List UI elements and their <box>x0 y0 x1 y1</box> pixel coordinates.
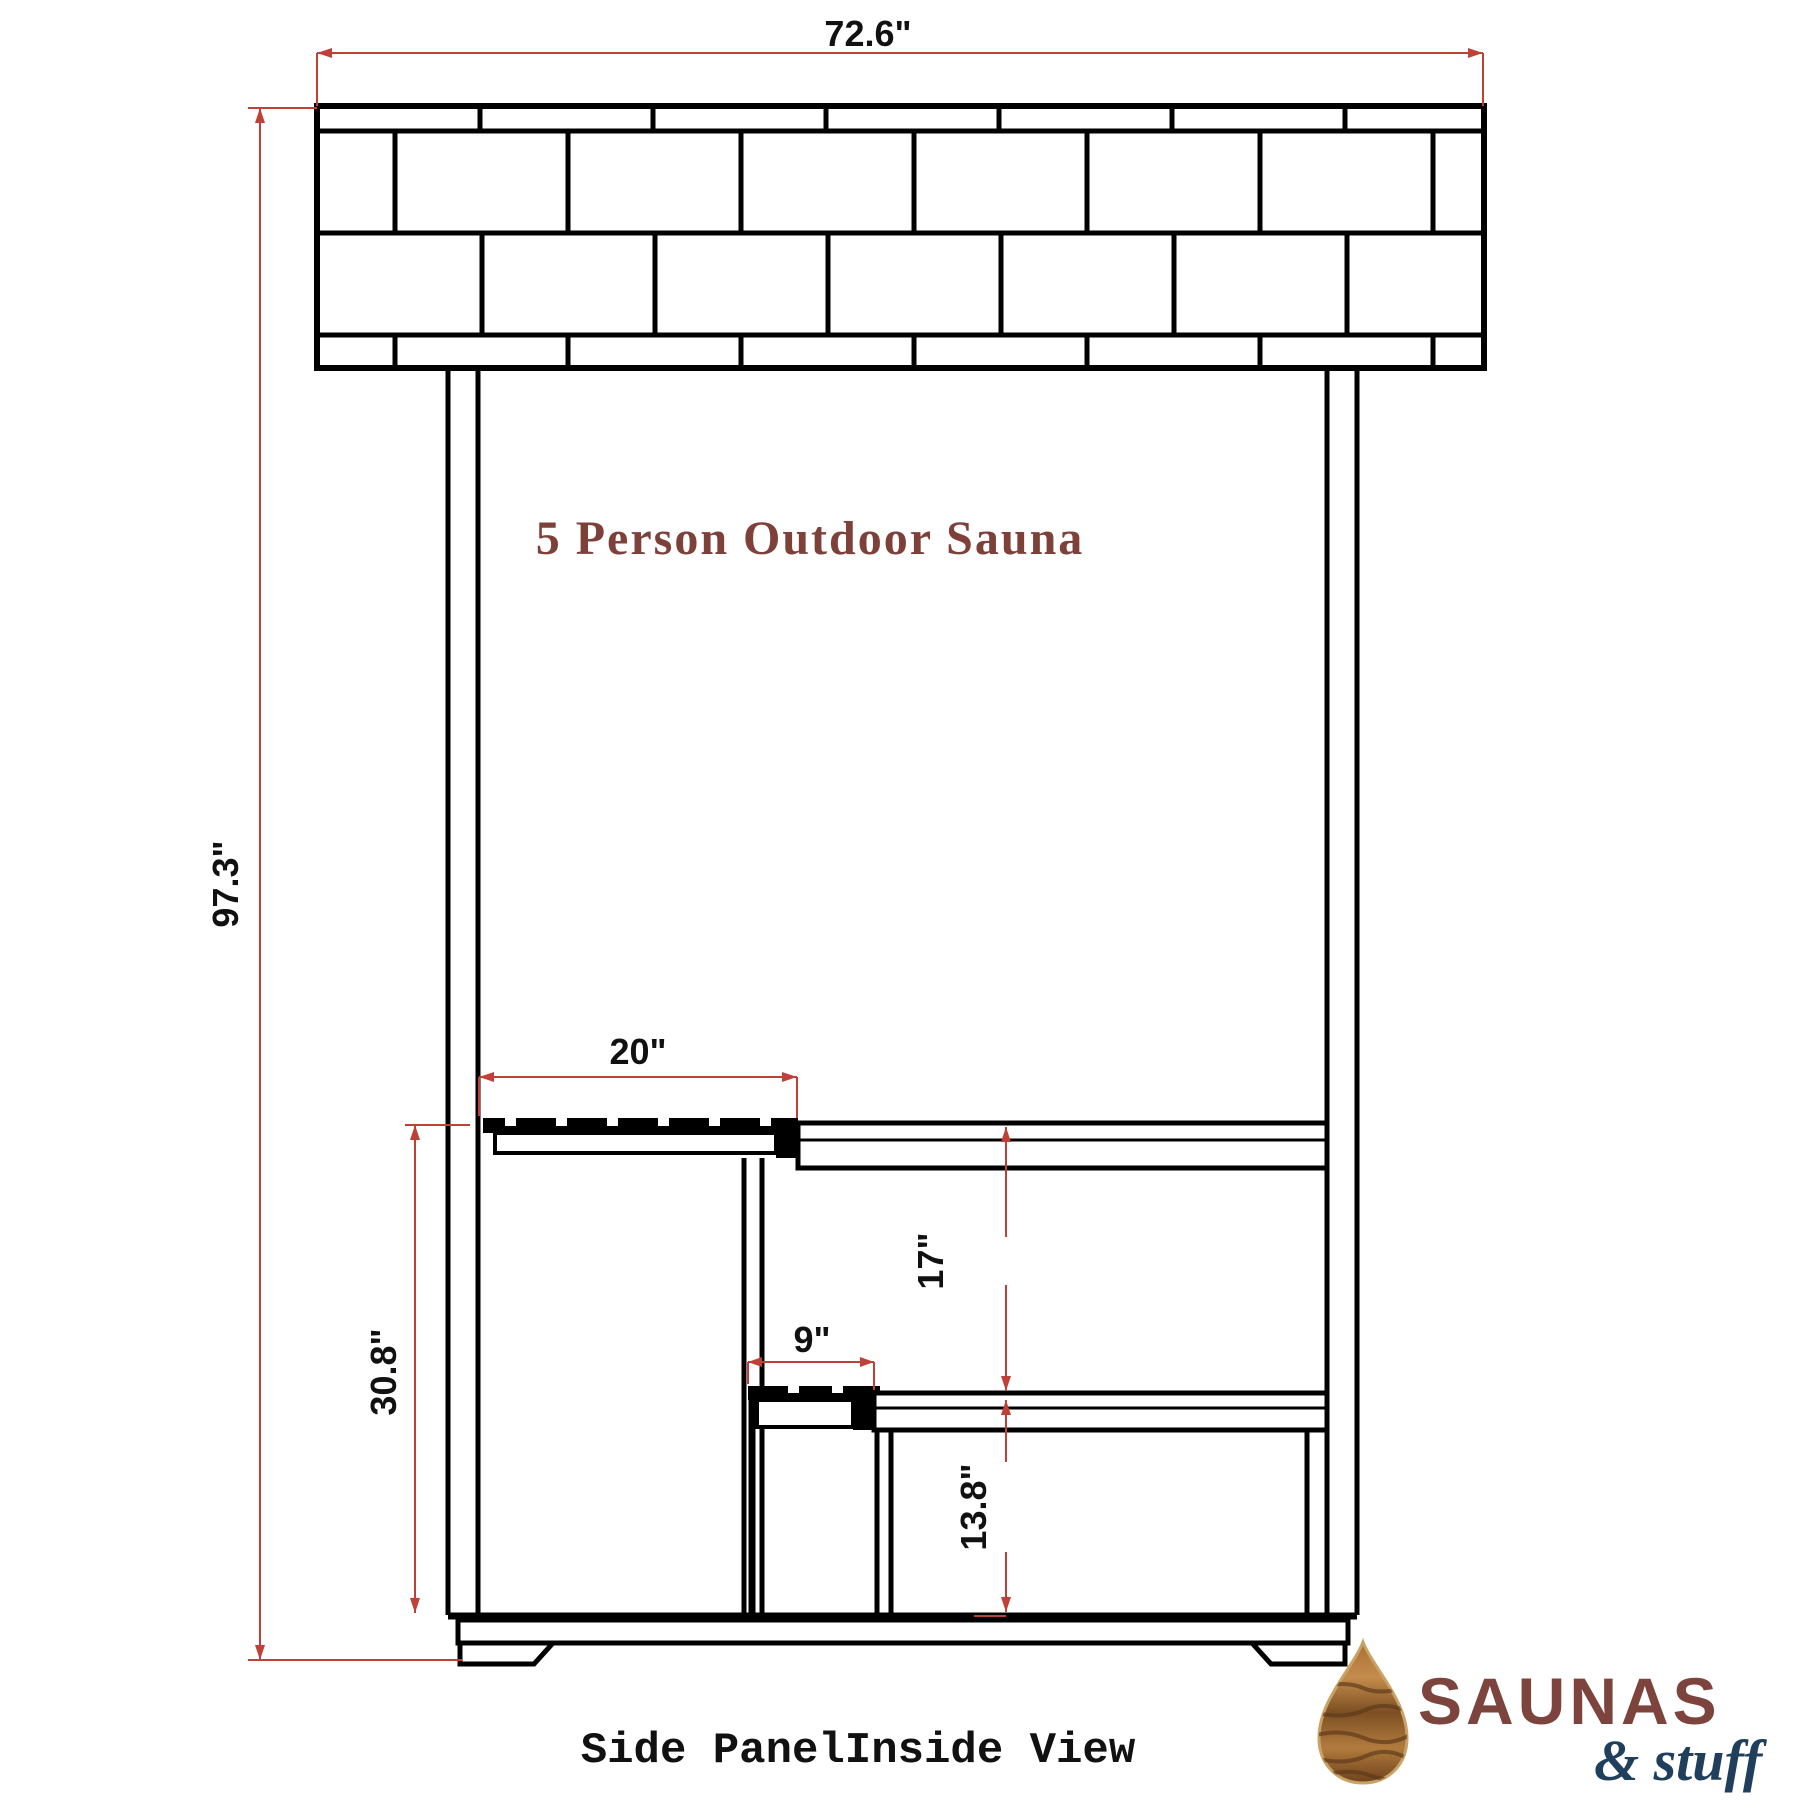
upper-bench-board-right <box>798 1123 1327 1168</box>
left-foot <box>460 1643 553 1664</box>
left-wall <box>448 368 478 1615</box>
logo-brand-text: SAUNAS <box>1418 1664 1721 1738</box>
upper-bench-height-label: 30.8" <box>363 1328 404 1415</box>
sauna-dimension-drawing: 72.6" 97.3" 30.8" 20" 9" 17" <box>0 0 1800 1800</box>
step-bench <box>748 1386 891 1613</box>
upper-bench-depth-label: 20" <box>609 1031 666 1072</box>
base-board <box>458 1620 1348 1643</box>
dimension-upper-bench-depth: 20" <box>479 1031 797 1118</box>
saunas-and-stuff-logo: SAUNAS & stuff <box>1313 1642 1768 1793</box>
lower-bench-board-right <box>874 1393 1327 1613</box>
right-wall <box>1327 368 1357 1615</box>
dimension-overall-width: 72.6" <box>317 13 1483 106</box>
drawing-title: 5 Person Outdoor Sauna <box>536 512 1085 565</box>
right-foot <box>1252 1643 1345 1664</box>
dimension-upper-bench-height: 30.8" <box>363 1125 470 1613</box>
overall-height-label: 97.3" <box>205 840 246 927</box>
bench-to-step-label: 17" <box>910 1232 951 1289</box>
roof-brick-band <box>317 106 1484 368</box>
overall-width-label: 72.6" <box>824 13 911 54</box>
logo-suffix-text: & stuff <box>1594 1728 1768 1793</box>
view-caption: Side PanelInside View <box>581 1726 1136 1776</box>
step-height-label: 13.8" <box>953 1463 994 1550</box>
dimension-step-depth: 9" <box>748 1319 874 1390</box>
step-depth-label: 9" <box>793 1319 830 1360</box>
